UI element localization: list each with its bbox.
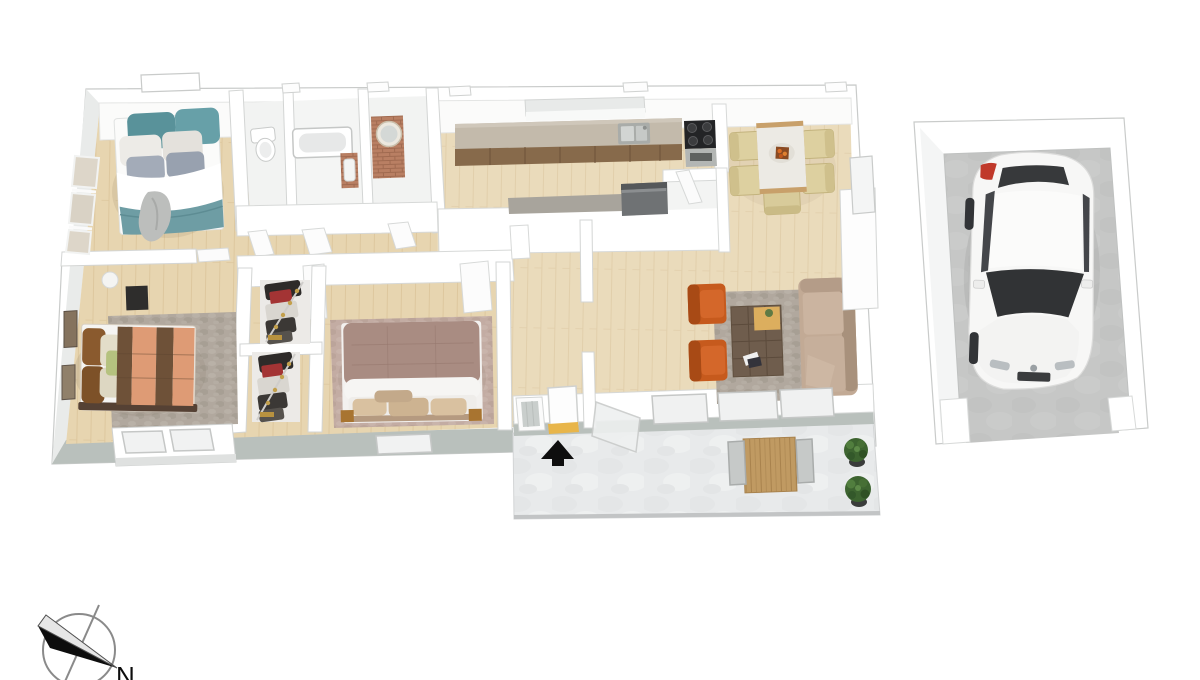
- svg-text:N: N: [116, 661, 135, 680]
